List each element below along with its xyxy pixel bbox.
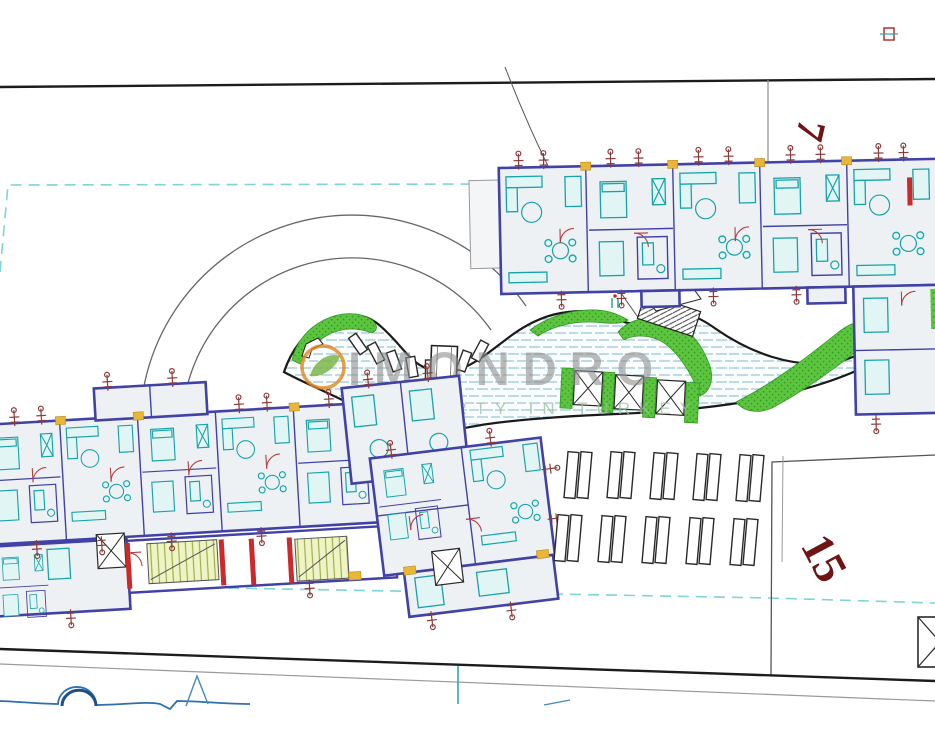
crossed-box-icon bbox=[918, 617, 935, 667]
parking-slot bbox=[736, 455, 751, 502]
parking-slot bbox=[598, 516, 613, 563]
pergola-x-icon bbox=[432, 548, 464, 585]
parking-slot bbox=[567, 515, 582, 562]
north-building-wing bbox=[853, 285, 935, 415]
site-plan-drawing: IMONDRO PROPERTY IN TURKEY bbox=[0, 0, 935, 735]
site-plan-canvas: IMONDRO PROPERTY IN TURKEY bbox=[0, 0, 935, 735]
pool-ladder-icon bbox=[612, 294, 618, 308]
parking-slot bbox=[743, 519, 758, 566]
plot-7-label: 7 bbox=[787, 116, 835, 146]
parking-slot bbox=[554, 515, 569, 562]
balcony bbox=[469, 180, 501, 269]
parking-slot bbox=[577, 452, 592, 499]
parking-slot bbox=[693, 454, 708, 501]
parking-slot bbox=[655, 517, 670, 564]
plot-15-label: 15 bbox=[791, 526, 858, 591]
parking-south-row bbox=[554, 515, 758, 566]
parking-slot bbox=[564, 452, 579, 499]
parking-slot bbox=[611, 516, 626, 563]
parking-slot bbox=[699, 518, 714, 565]
entrance-porch bbox=[807, 287, 845, 304]
entrance-porch bbox=[641, 290, 679, 307]
parking-slot bbox=[650, 453, 665, 500]
parking-slot bbox=[642, 517, 657, 564]
parking-slot bbox=[607, 452, 622, 499]
parking-slot bbox=[730, 519, 745, 566]
parking-slot bbox=[706, 454, 721, 501]
survey-mark-icon bbox=[880, 28, 898, 40]
parking-slot bbox=[620, 452, 635, 499]
parking-north-row bbox=[564, 452, 764, 502]
road-lines bbox=[0, 649, 935, 701]
parking-slot bbox=[749, 455, 764, 502]
parking-slot bbox=[663, 453, 678, 500]
parking-slot bbox=[686, 518, 701, 565]
terrain-contours bbox=[0, 666, 570, 709]
red-wall-segment bbox=[907, 177, 913, 205]
